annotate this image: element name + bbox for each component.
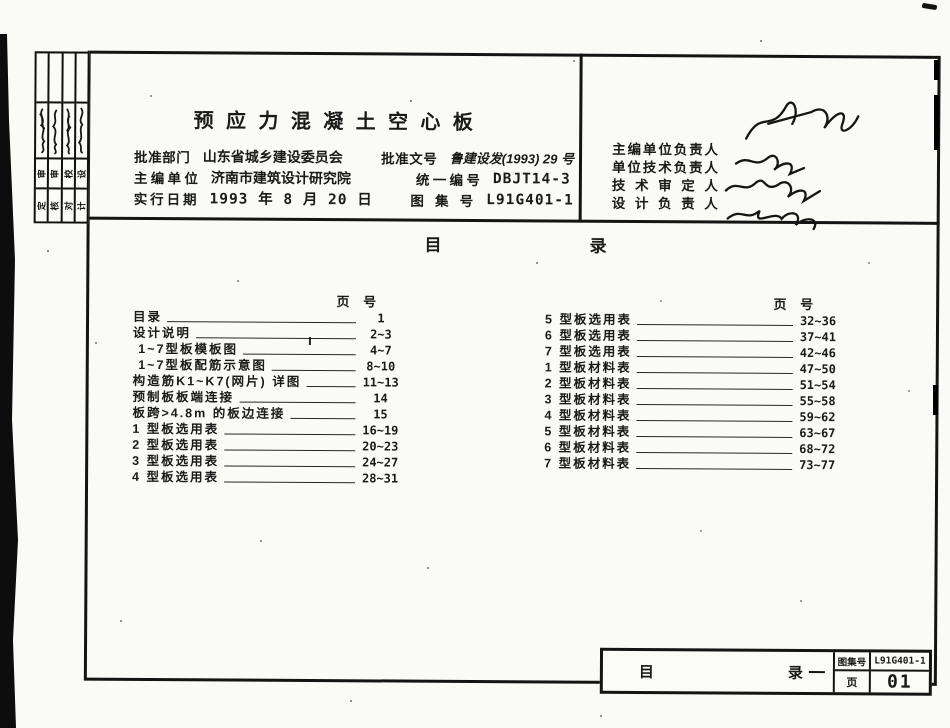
sheet-name-char: 目 xyxy=(639,661,654,682)
toc-entry: 3 型板选用表24~27 xyxy=(132,453,402,471)
toc-entry: 构造筋K1~K7(网片) 详图11~13 xyxy=(133,373,403,391)
edge-strip-column: 设 计 xyxy=(75,54,87,222)
toc-entry-pages: 1 xyxy=(359,311,403,326)
edge-strip-char: 对 xyxy=(62,201,73,210)
toc-entry-pages: 32~36 xyxy=(796,314,840,329)
leader-line xyxy=(167,321,356,323)
toc-entry-pages: 73~77 xyxy=(795,458,839,473)
toc-entry-pages: 63~67 xyxy=(795,426,839,441)
leader-line xyxy=(224,433,355,435)
approval-info-row: 主编单位 济南市建筑设计研究院 统一编号 DBJT14-3 xyxy=(134,166,574,190)
toc-entry-pages: 8~10 xyxy=(359,359,403,374)
info-label: 批准文号 xyxy=(381,147,437,167)
scan-smudge xyxy=(933,385,938,415)
signature-scribble-icon xyxy=(728,211,816,230)
toc-entry-label: 4 型板选用表 xyxy=(132,470,219,486)
toc-entry-label: 7 型板选用表 xyxy=(545,344,632,360)
toc-entry: 板跨>4.8m 的板边连接15 xyxy=(132,405,402,423)
toc-entry-pages: 59~62 xyxy=(795,410,839,425)
toc-entry-label: 7 型板材料表 xyxy=(544,456,631,472)
edge-strip-label-cell: 审 xyxy=(49,157,60,187)
toc-entry-label: 4 型板材料表 xyxy=(544,408,631,424)
toc-heading-char: 录 xyxy=(589,232,606,257)
info-value: DBJT14-3 xyxy=(493,171,574,187)
toc-entry: 设计说明2~3 xyxy=(133,325,403,343)
edge-strip-empty-cell xyxy=(63,53,75,101)
official-role-label: 技术审定人 xyxy=(612,177,718,196)
edge-strip-char: 校 xyxy=(62,169,73,178)
toc-entry: 1 型板选用表16~19 xyxy=(132,421,402,439)
sheet-name-char: 录 xyxy=(788,661,803,682)
toc-entry: 2 型板材料表51~54 xyxy=(545,375,840,393)
toc-entry-pages: 47~50 xyxy=(796,362,840,377)
edge-strip-label-cell: 对 xyxy=(62,187,73,221)
toc-entry-pages: 28~31 xyxy=(358,471,402,486)
toc-entry-label: 2 型板材料表 xyxy=(545,376,632,392)
edge-strip-empty-cell xyxy=(36,53,48,101)
approval-info-row: 批准部门 山东省城乡建设委员会 批准文号 鲁建设发(1993) 29 号 xyxy=(134,145,574,169)
toc-entry: 1 型板材料表47~50 xyxy=(545,359,840,377)
edge-strip-signature-cell xyxy=(36,101,48,157)
atlas-number-row: 图集号 L91G401-1 xyxy=(835,652,929,672)
toc-heading-char: 目 xyxy=(424,231,441,256)
approval-info-row: 实行日期 1993 年 8 月 20 日 图集号 L91G401-1 xyxy=(134,187,574,211)
scanned-atlas-page: 审 定 审 核 校 对 xyxy=(0,0,950,728)
leader-line xyxy=(196,337,356,339)
page-number-column-header: 页 号 xyxy=(133,294,403,311)
info-value: 山东省城乡建设委员会 xyxy=(203,146,381,167)
edge-strip-label-cell: 设 xyxy=(76,158,87,188)
leader-line xyxy=(224,465,355,467)
binding-edge-block: 审 定 审 核 校 对 xyxy=(34,51,90,223)
edge-strip-char: 定 xyxy=(36,201,47,210)
toc-entry-pages: 51~54 xyxy=(796,378,840,393)
edge-strip-column: 审 核 xyxy=(49,53,63,221)
leader-line xyxy=(636,435,792,437)
info-value: 鲁建设发(1993) 29 号 xyxy=(450,148,574,168)
handwritten-signatures xyxy=(716,93,907,234)
info-label: 主编单位 xyxy=(134,166,198,186)
toc-entry-label: 构造筋K1~K7(网片) 详图 xyxy=(133,374,302,390)
scan-smudge xyxy=(934,60,939,80)
signature-scribble-icon xyxy=(736,156,804,174)
toc-entry-label: 3 型板材料表 xyxy=(545,392,632,408)
leader-line xyxy=(637,387,793,389)
toc-entry: 2 型板选用表20~23 xyxy=(132,437,402,455)
leader-line xyxy=(636,419,792,421)
atlas-number-label: 图集号 xyxy=(835,652,871,669)
signature-scribble-icon xyxy=(37,106,47,154)
leader-line xyxy=(306,385,355,386)
leader-line xyxy=(243,353,356,355)
info-label: 实行日期 xyxy=(134,187,197,207)
edge-strip-column: 审 定 xyxy=(36,53,50,221)
toc-entry: 4 型板材料表59~62 xyxy=(544,407,839,425)
atlas-number-value: L91G401-1 xyxy=(871,652,929,669)
toc-column-right: 页 号 5 型板选用表32~36 6 型板选用表37~41 7 型板选用表42~… xyxy=(544,296,840,473)
toc-entry-pages: 11~13 xyxy=(359,375,403,390)
signature-scribble-icon xyxy=(76,107,86,155)
edge-strip-empty-cell xyxy=(76,54,88,102)
edge-strip-empty-cell xyxy=(50,53,62,101)
toc-entry-label: 5 型板选用表 xyxy=(545,312,632,328)
toc-entry: 5 型板选用表32~36 xyxy=(545,311,840,329)
official-role-label: 单位技术负责人 xyxy=(612,159,718,178)
info-value: 济南市建筑设计研究院 xyxy=(211,167,416,188)
leader-line xyxy=(272,369,356,371)
toc-entry-pages: 20~23 xyxy=(358,439,402,454)
toc-entry-label: 预制板板端连接 xyxy=(133,390,235,406)
toc-entry-pages: 14 xyxy=(359,391,403,406)
toc-entry-label: 6 型板选用表 xyxy=(545,328,632,344)
toc-entry: 1~7型板模板图4~7 xyxy=(133,341,403,359)
toc-entry-label: 目录 xyxy=(133,310,162,325)
leader-line xyxy=(239,401,355,403)
leader-line xyxy=(224,449,355,451)
toc-heading: 目 录 xyxy=(424,231,606,257)
drawing-sheet: 审 定 审 核 校 对 xyxy=(0,0,950,728)
toc-entry-label: 1~7型板模板图 xyxy=(133,342,238,358)
info-value: L91G401-1 xyxy=(486,192,574,209)
toc-entry-pages: 15 xyxy=(358,407,402,422)
leader-line xyxy=(290,417,355,418)
toc-entry-label: 1~7型板配筋示意图 xyxy=(133,358,267,374)
toc-entry-pages: 37~41 xyxy=(796,330,840,345)
edge-strip-column: 校 对 xyxy=(62,53,76,221)
official-role-label: 设计负责人 xyxy=(612,195,718,214)
leader-line xyxy=(637,355,793,357)
scan-artifact xyxy=(309,337,311,345)
toc-entry: 6 型板选用表37~41 xyxy=(545,327,840,345)
dash-mark xyxy=(809,671,825,673)
document-title: 预应力混凝土空心板 xyxy=(87,104,579,136)
edge-strip-char: 设 xyxy=(76,169,87,178)
info-label: 批准部门 xyxy=(134,145,190,165)
signature-scribble-icon xyxy=(746,102,858,139)
edge-strip-label-cell: 核 xyxy=(49,187,60,221)
leader-line xyxy=(637,371,793,373)
sheet-name-char-group: 录 xyxy=(788,661,825,682)
toc-entry-label: 5 型板材料表 xyxy=(544,424,631,440)
signature-scribble-icon xyxy=(726,180,820,201)
toc-entry-label: 设计说明 xyxy=(133,326,191,341)
toc-entry-pages: 2~3 xyxy=(359,327,403,342)
leader-line xyxy=(636,403,792,405)
toc-entry: 4 型板选用表28~31 xyxy=(132,469,402,487)
toc-entry-label: 2 型板选用表 xyxy=(132,438,219,454)
edge-strip-char: 审 xyxy=(36,169,47,178)
toc-entry-pages: 68~72 xyxy=(795,442,839,457)
toc-entry-pages: 4~7 xyxy=(359,343,403,358)
edge-strip-signature-cell xyxy=(49,101,61,157)
toc-entry-pages: 16~19 xyxy=(358,423,402,438)
signature-scribble-icon xyxy=(50,106,60,154)
edge-strip-signature-cell xyxy=(63,101,75,157)
toc-entry: 预制板板端连接14 xyxy=(133,389,403,407)
edge-strip-char: 计 xyxy=(75,201,86,210)
page-number-label: 页 xyxy=(835,671,871,692)
toc-entry: 1~7型板配筋示意图8~10 xyxy=(133,357,403,375)
edge-strip-char: 审 xyxy=(49,169,60,178)
leader-line xyxy=(636,451,792,453)
edge-strip-label-cell: 校 xyxy=(62,157,73,187)
edge-strip-char: 核 xyxy=(49,201,60,210)
info-label: 统一编号 xyxy=(416,168,480,188)
toc-entry: 6 型板材料表68~72 xyxy=(544,439,839,457)
scan-edge-band xyxy=(0,0,26,728)
toc-entry: 目录1 xyxy=(133,309,403,327)
approval-info-grid: 批准部门 山东省城乡建设委员会 批准文号 鲁建设发(1993) 29 号 主编单… xyxy=(134,145,574,211)
toc-entry-pages: 55~58 xyxy=(796,394,840,409)
toc-entry: 7 型板材料表73~77 xyxy=(544,455,839,473)
toc-entry-pages: 24~27 xyxy=(358,455,402,470)
official-role-label: 主编单位负责人 xyxy=(612,141,718,160)
edge-strip-label-cell: 审 xyxy=(36,157,47,187)
toc-entry: 5 型板材料表63~67 xyxy=(544,423,839,441)
sheet-number-cells: 图集号 L91G401-1 页 01 xyxy=(835,652,929,693)
info-label: 图集号 xyxy=(410,189,473,209)
toc-entry-label: 板跨>4.8m 的板边连接 xyxy=(132,406,285,422)
leader-line xyxy=(637,339,793,341)
toc-entry-pages: 42~46 xyxy=(796,346,840,361)
sheet-title-block: 目 录 图集号 L91G401-1 页 01 xyxy=(600,648,932,696)
leader-line xyxy=(636,467,792,469)
page-number-value: 01 xyxy=(871,671,929,692)
toc-entry: 3 型板材料表55~58 xyxy=(545,391,840,409)
sheet-name-cell: 目 录 xyxy=(603,651,835,692)
edge-strip-label-cell: 定 xyxy=(36,187,47,221)
info-value: 1993 年 8 月 20 日 xyxy=(209,187,410,209)
signature-scribble-icon xyxy=(63,106,73,154)
edge-strip-signature-cell xyxy=(76,102,88,158)
leader-line xyxy=(637,323,793,325)
responsible-persons-block: 主编单位负责人 单位技术负责人 技术审定人 设计负责人 xyxy=(612,141,718,214)
toc-entry-label: 1 型板材料表 xyxy=(545,360,632,376)
scan-smudge xyxy=(934,95,939,150)
page-number-row: 页 01 xyxy=(835,671,929,693)
toc-entry-label: 6 型板材料表 xyxy=(544,440,631,456)
toc-entry-label: 3 型板选用表 xyxy=(132,454,219,470)
edge-strip-label-cell: 计 xyxy=(75,188,86,222)
leader-line xyxy=(224,481,355,483)
toc-column-left: 页 号 目录1 设计说明2~3 1~7型板模板图4~7 1~7型板配筋示意图8~… xyxy=(132,294,403,487)
toc-entry: 7 型板选用表42~46 xyxy=(545,343,840,361)
toc-entry-label: 1 型板选用表 xyxy=(132,422,219,438)
